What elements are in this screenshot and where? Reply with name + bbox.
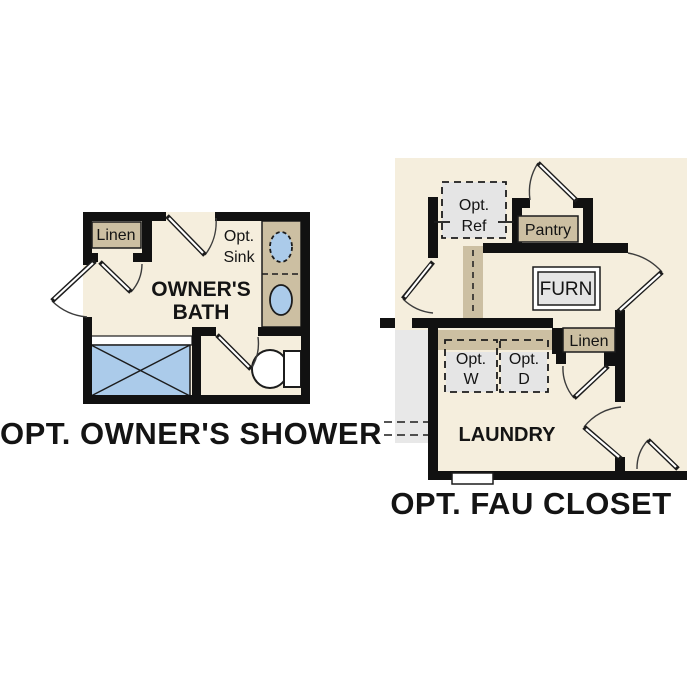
opt-ref-label-line2: Ref bbox=[462, 218, 487, 235]
pantry-label: Pantry bbox=[525, 222, 571, 239]
opt-sink-label-line2: Sink bbox=[223, 249, 255, 266]
furnace-label: FURN bbox=[540, 279, 593, 300]
owners-shower-plan-title: OPT. OWNER'S SHOWER bbox=[0, 416, 382, 451]
laundry-label: LAUNDRY bbox=[458, 424, 556, 446]
opt-dryer-label-line1: Opt. bbox=[509, 351, 539, 368]
toilet bbox=[252, 350, 301, 388]
opt-dryer-label-line2: D bbox=[518, 371, 530, 388]
owners-bath-label-line1: OWNER'S bbox=[151, 278, 251, 301]
door-threshold bbox=[452, 473, 493, 484]
opt-washer-label-line2: W bbox=[463, 371, 479, 388]
shower-pan bbox=[91, 345, 190, 396]
owners-bath-label-line2: BATH bbox=[173, 301, 230, 324]
fau-closet-plan: Opt. Ref Pantry FURN Linen Opt. W Opt. D… bbox=[380, 158, 687, 521]
optional-sink-basin bbox=[270, 232, 292, 262]
floor-cutout bbox=[395, 443, 428, 480]
shower-threshold bbox=[91, 336, 192, 345]
floorplan-canvas: Linen Opt. Sink OWNER'S BATH OPT. OWNER'… bbox=[0, 0, 687, 687]
fau-closet-plan-title: OPT. FAU CLOSET bbox=[390, 486, 671, 521]
floorplan-drawing: Linen Opt. Sink OWNER'S BATH OPT. OWNER'… bbox=[0, 0, 687, 687]
linen-label: Linen bbox=[96, 227, 135, 244]
adjacent-counter-area bbox=[395, 330, 428, 443]
opt-sink-label-line1: Opt. bbox=[224, 228, 254, 245]
opt-ref-label-line1: Opt. bbox=[459, 197, 489, 214]
sink-basin bbox=[270, 285, 292, 315]
opt-washer-label-line1: Opt. bbox=[456, 351, 486, 368]
linen-label: Linen bbox=[569, 333, 608, 350]
owners-shower-plan: Linen Opt. Sink OWNER'S BATH OPT. OWNER'… bbox=[0, 212, 382, 451]
